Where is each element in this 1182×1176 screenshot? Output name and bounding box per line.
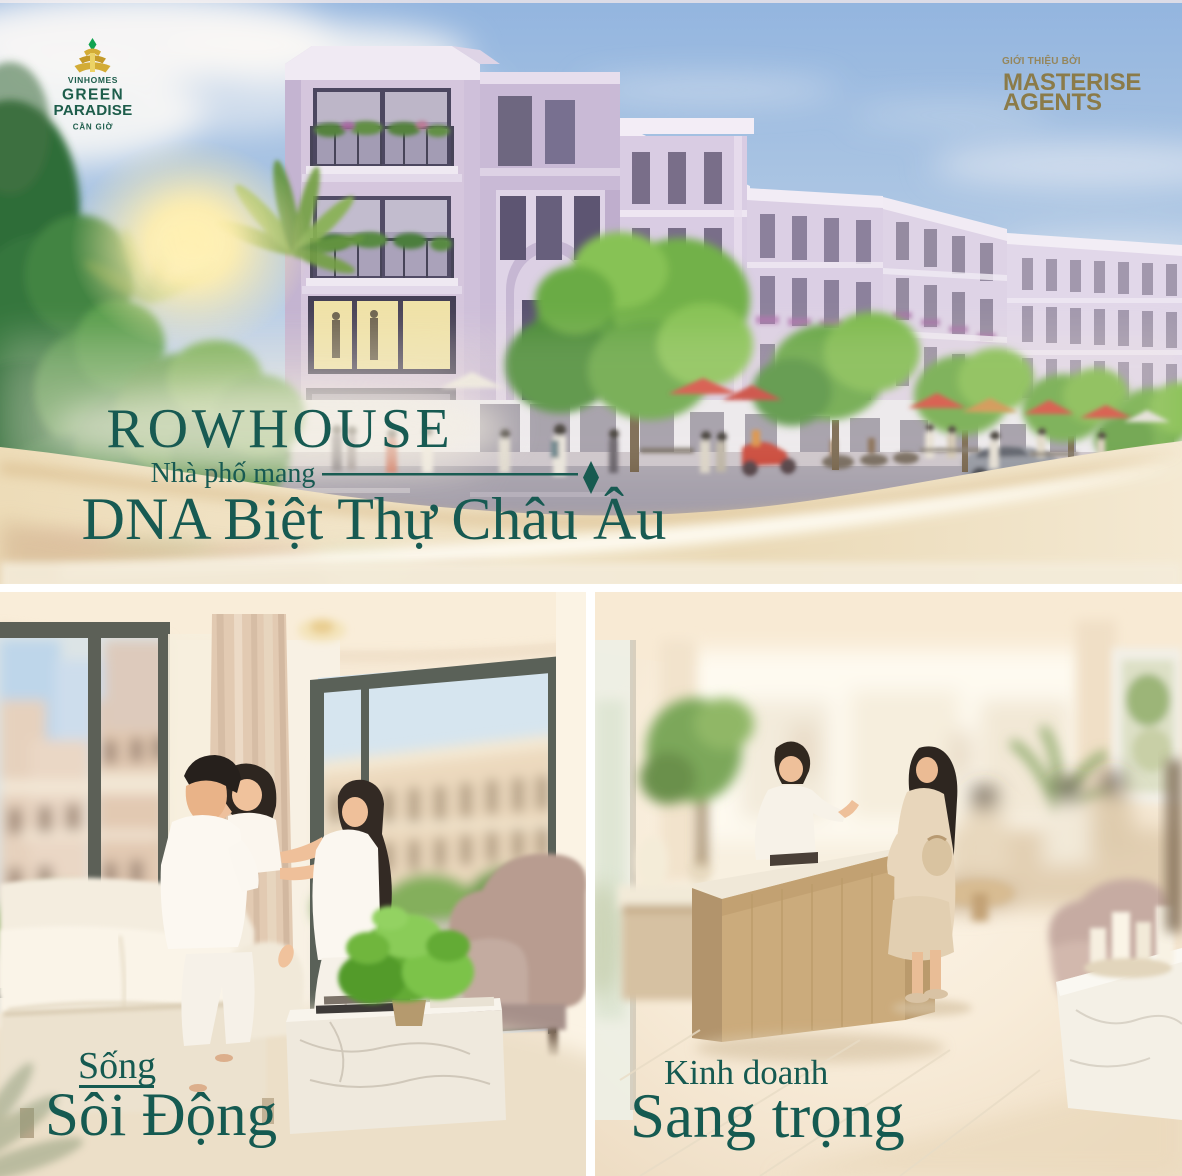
svg-text:Sống: Sống [78, 1045, 156, 1087]
svg-text:CẦN GIỜ: CẦN GIỜ [73, 122, 113, 132]
svg-text:GIỚI THIỆU BỞI: GIỚI THIỆU BỞI [1002, 54, 1081, 67]
svg-text:GREEN: GREEN [62, 87, 124, 104]
svg-text:ROWHOUSE: ROWHOUSE [107, 398, 454, 460]
svg-text:Nhà phố mang: Nhà phố mang [151, 458, 316, 489]
svg-text:Sôi Động: Sôi Động [45, 1082, 277, 1149]
svg-text:AGENTS: AGENTS [1003, 89, 1102, 116]
svg-text:Sang trọng: Sang trọng [630, 1081, 905, 1151]
svg-text:VINHOMES: VINHOMES [68, 75, 118, 85]
svg-text:DNA Biệt Thự Châu Âu: DNA Biệt Thự Châu Âu [82, 486, 667, 552]
svg-text:PARADISE: PARADISE [54, 102, 133, 119]
